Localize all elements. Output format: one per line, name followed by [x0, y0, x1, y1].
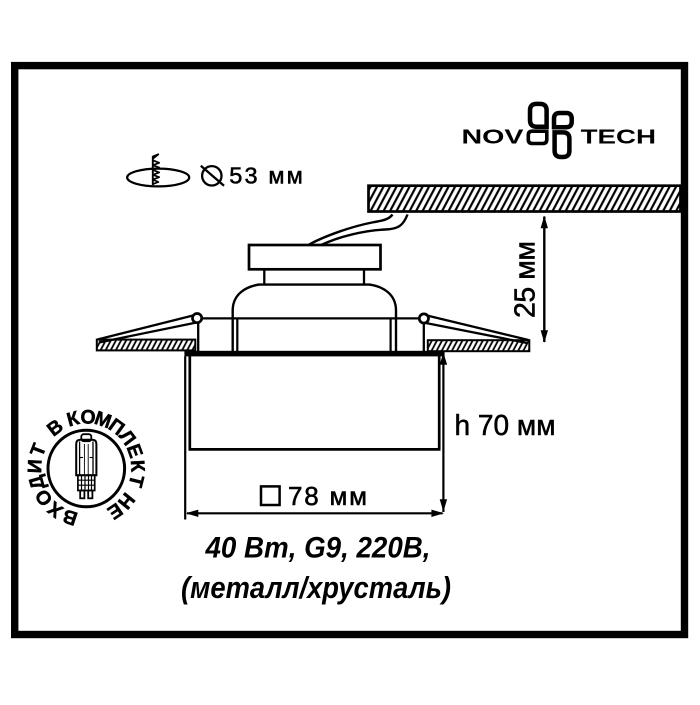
- svg-text:(металл/хрусталь): (металл/хрусталь): [181, 571, 451, 605]
- svg-text:TECH: TECH: [581, 126, 657, 148]
- svg-text:NOV: NOV: [462, 126, 525, 148]
- svg-text:h 70 мм: h 70 мм: [455, 410, 556, 442]
- svg-text:К: К: [126, 459, 149, 472]
- svg-text:И: И: [24, 459, 47, 474]
- svg-text:40 Вm, G9, 220В,: 40 Вm, G9, 220В,: [205, 532, 431, 565]
- svg-text:53 мм: 53 мм: [229, 163, 302, 189]
- svg-text:78 мм: 78 мм: [288, 481, 367, 511]
- svg-text:25 мм: 25 мм: [510, 241, 542, 318]
